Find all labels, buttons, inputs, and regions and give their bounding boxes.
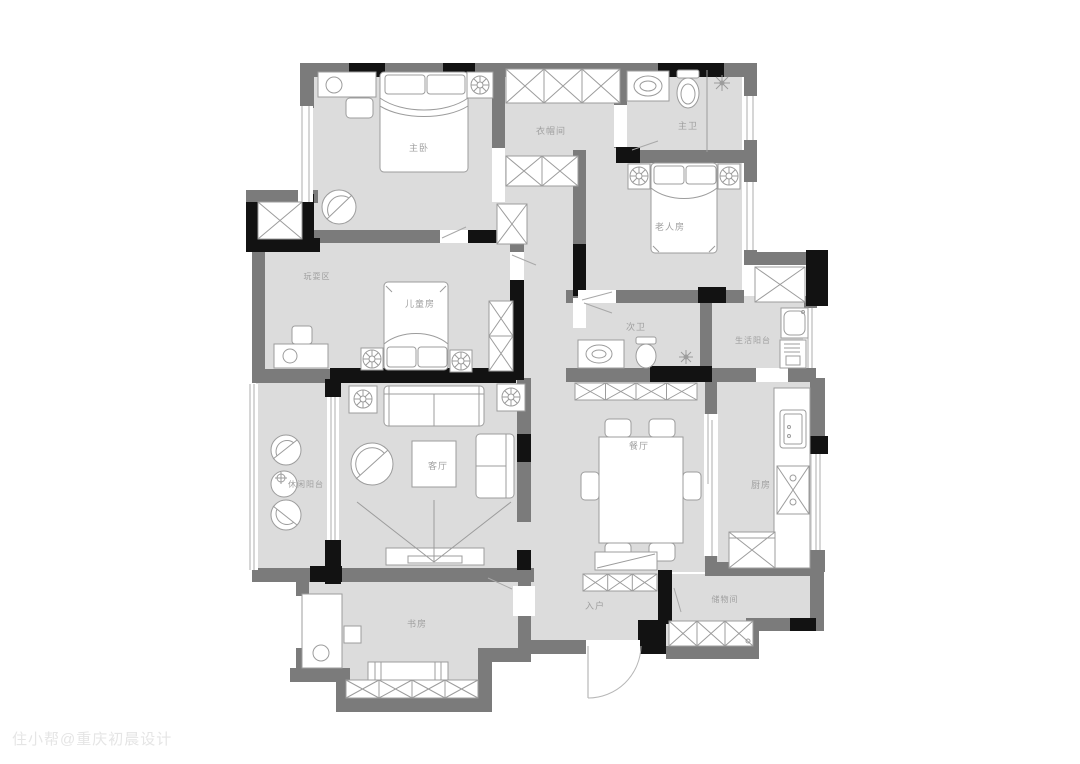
nightstand-lamp xyxy=(718,164,740,189)
utility-balcony-fixtures xyxy=(780,308,808,368)
room-label-kitchen: 厨房 xyxy=(751,479,771,490)
room-label-master-bath: 主卫 xyxy=(678,120,698,131)
toilet-icon xyxy=(677,70,699,108)
utility-sink-icon xyxy=(780,340,806,368)
floor-plan-page: 主卧 衣帽间 主卫 老人房 玩耍区 儿童房 次卫 生活阳台 餐厅 厨房 客厅 休… xyxy=(0,0,1080,764)
elevator-shaft xyxy=(258,202,302,239)
room-label-study: 书房 xyxy=(407,618,427,629)
corner-chair xyxy=(322,190,356,224)
door-gap-utility xyxy=(756,368,788,382)
kitchen-sink-icon xyxy=(780,410,806,448)
shower-head-icon xyxy=(714,75,730,91)
dining-chair xyxy=(683,472,701,500)
vanity xyxy=(578,340,624,368)
loveseat xyxy=(476,434,514,498)
room-label-master-bedroom: 主卧 xyxy=(409,142,429,153)
shower-head-icon xyxy=(679,350,693,364)
nightstand-lamp xyxy=(467,72,493,98)
room-label-elder-room: 老人房 xyxy=(655,221,685,232)
fridge-icon xyxy=(729,532,775,568)
room-label-living: 客厅 xyxy=(428,460,448,471)
watermark-text: 住小帮@重庆初晨设计 xyxy=(12,731,172,748)
door-gap-master-bath xyxy=(614,105,627,147)
door-gap-entry xyxy=(586,640,640,654)
storage-wardrobe xyxy=(669,621,753,646)
dining-chair xyxy=(649,419,675,437)
door-gap-cloakroom xyxy=(492,148,505,202)
room-label-entry: 入户 xyxy=(585,600,605,611)
nightstand-lamp xyxy=(450,350,472,372)
nightstand-lamp xyxy=(628,164,650,189)
chair xyxy=(346,98,373,118)
sideboard-cabinet xyxy=(575,383,697,400)
flue-shaft xyxy=(755,267,805,302)
door-gap-study xyxy=(513,586,535,616)
double-bed xyxy=(651,163,717,253)
room-label-dining: 餐厅 xyxy=(629,440,649,451)
washing-machine-icon xyxy=(781,308,808,338)
window-master-left xyxy=(298,106,313,202)
glass-door-kitchen xyxy=(704,414,718,556)
shoe-cabinet xyxy=(583,574,657,591)
sofa xyxy=(384,386,484,426)
window-leisure-balcony xyxy=(246,384,258,570)
entry-bench xyxy=(595,552,657,570)
closet-cabinet xyxy=(497,204,527,244)
room-label-kids-room: 儿童房 xyxy=(405,298,435,309)
door-gap-kids-room xyxy=(510,252,524,280)
room-label-storage: 储物间 xyxy=(712,594,739,604)
balcony-chair xyxy=(271,435,301,465)
study-desk xyxy=(302,594,342,668)
stove-icon xyxy=(777,466,809,514)
side-table-lamp xyxy=(349,386,377,413)
room-label-second-bath: 次卫 xyxy=(626,321,646,332)
door-gap-second-bath xyxy=(573,298,586,328)
window-elder-right xyxy=(743,182,758,250)
window-bath-right xyxy=(743,96,758,140)
toilet-icon xyxy=(636,337,656,368)
chair xyxy=(292,326,312,344)
side-table-lamp xyxy=(497,384,525,411)
glass-living-balcony xyxy=(327,397,339,540)
study-wardrobe xyxy=(346,680,478,698)
floor-plan-drawing: 主卧 衣帽间 主卫 老人房 玩耍区 儿童房 次卫 生活阳台 餐厅 厨房 客厅 休… xyxy=(0,0,1080,764)
dining-chair xyxy=(605,419,631,437)
room-label-play-area: 玩耍区 xyxy=(304,272,331,281)
desk xyxy=(318,72,376,97)
room-label-cloakroom: 衣帽间 xyxy=(536,125,566,136)
window-kitchen-right xyxy=(812,454,825,550)
storage-furniture xyxy=(669,621,753,646)
kids-bed xyxy=(384,282,448,370)
nightstand-lamp xyxy=(361,348,383,370)
wardrobe xyxy=(489,301,513,371)
balcony-chair xyxy=(271,500,301,530)
double-bed xyxy=(380,72,468,172)
dining-table xyxy=(599,437,683,543)
monitor xyxy=(344,626,361,643)
armchair xyxy=(351,443,393,485)
room-label-leisure-balcony: 休闲阳台 xyxy=(288,479,324,489)
dining-chair xyxy=(581,472,599,500)
desk xyxy=(274,344,328,368)
room-label-utility-balcony: 生活阳台 xyxy=(735,335,771,345)
